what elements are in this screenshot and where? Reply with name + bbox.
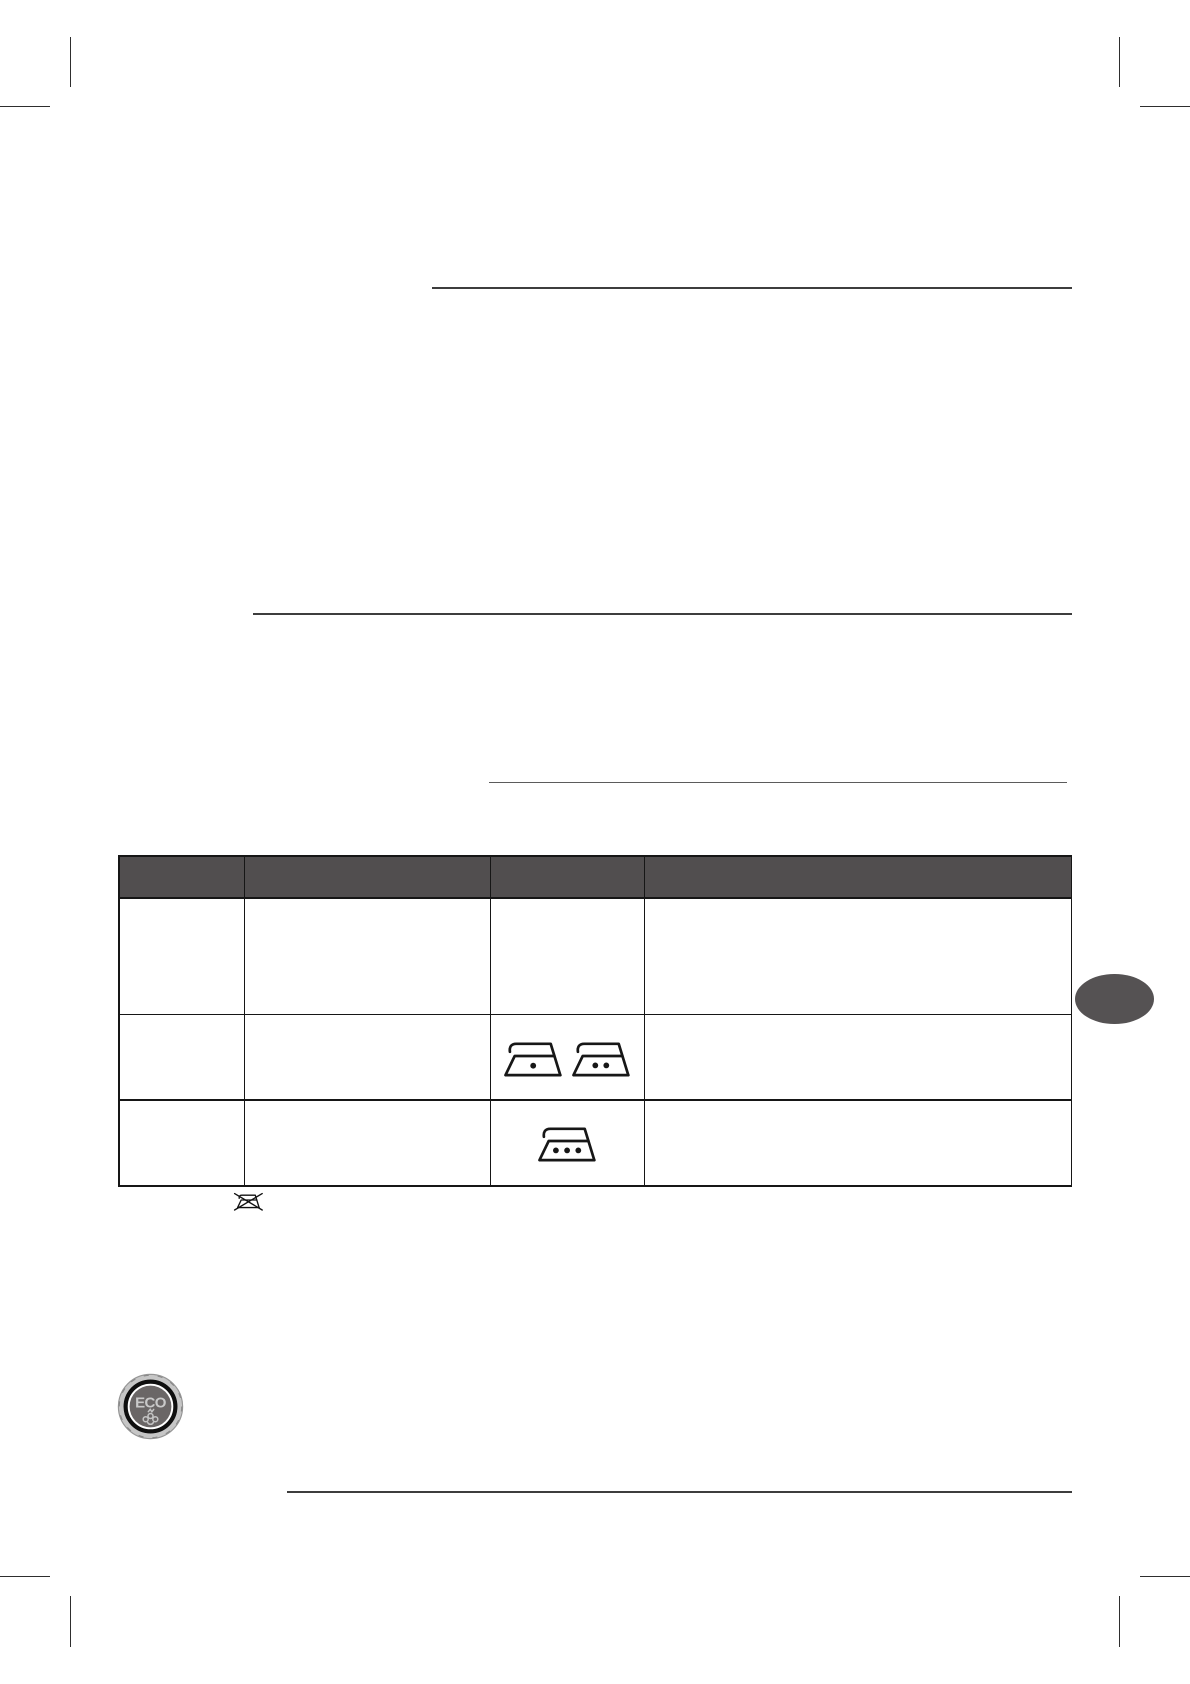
- svg-text:ECO: ECO: [135, 1395, 167, 1412]
